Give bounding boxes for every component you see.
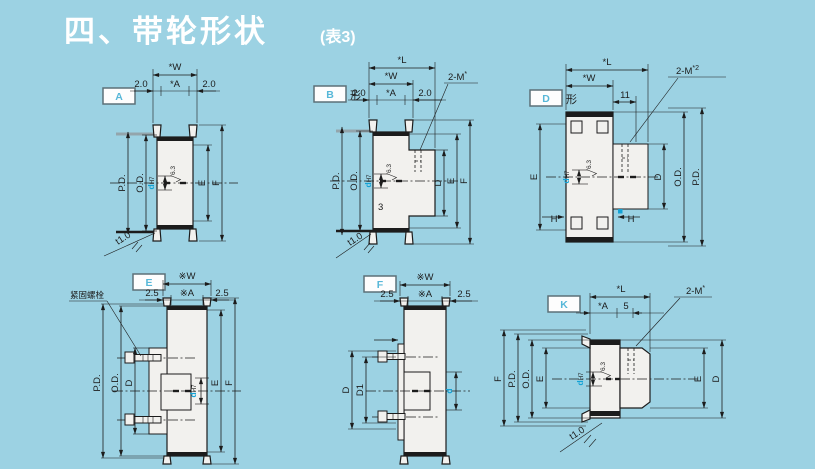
dim-e: E [210, 380, 221, 386]
dim-pad-right: 2.5 [457, 289, 470, 300]
dim-e-left: E [535, 376, 546, 382]
top-dimensions [130, 69, 220, 123]
dim-pad-left: 2.5 [145, 288, 158, 299]
dim-pd: P.D. [691, 168, 702, 185]
dim-e: E [529, 174, 540, 180]
dim-pd: P.D. [507, 370, 518, 387]
dim-pad-right: 2.5 [215, 288, 228, 299]
dim-h-left: H [551, 214, 558, 225]
dim-d: D [341, 386, 352, 393]
dim-a: ※A [418, 289, 433, 300]
type-a-label: A [103, 88, 135, 104]
svg-text:6.3: 6.3 [386, 164, 393, 173]
tap-callout [636, 297, 712, 346]
type-letter: K [560, 299, 568, 311]
dim-d1: D1 [355, 384, 366, 396]
dim-e-right: E [693, 376, 704, 382]
type-letter: A [115, 91, 123, 103]
tap-label: 2-M*2 [676, 65, 699, 77]
dim-w: ※W [179, 271, 196, 282]
svg-text:6.3: 6.3 [586, 160, 593, 169]
dim-od: O.D. [673, 167, 684, 187]
dim-od: O.D. [521, 369, 532, 389]
dim-od: O.D. [110, 373, 121, 393]
tap-label: 2-M* [686, 285, 705, 297]
dim-f: F [459, 178, 470, 184]
dim-a: *A [170, 79, 181, 90]
type-k-label: K [548, 296, 580, 312]
dim-f: F [211, 180, 222, 186]
dim-pad-left: 2.0 [134, 79, 147, 90]
dim-w: *W [169, 62, 182, 73]
dim-a: *A [386, 88, 397, 99]
dim-offset: 11 [620, 90, 630, 101]
dim-e: E [446, 178, 457, 184]
type-suffix: 形 [566, 93, 577, 106]
bore-label: dH7 [561, 170, 571, 184]
dim-pad-left: 2.5 [380, 289, 393, 300]
dim-w: *W [385, 71, 398, 82]
dim-l: *L [398, 55, 407, 66]
dim-f: F [224, 380, 235, 386]
dim-pad-left: 2.0 [352, 88, 365, 99]
diagram-type-e: E 紧固螺栓 [55, 268, 300, 468]
dim-pad-right: 2.0 [202, 79, 215, 90]
diagram-type-k: K *L *A 5 2-M* [490, 278, 755, 468]
dim-five: 5 [623, 301, 628, 312]
dim-d-hub: D [433, 179, 444, 186]
tap-callout [630, 77, 726, 142]
dim-w: *W [583, 73, 596, 84]
dim-pad-right: 2.0 [418, 88, 431, 99]
page-subtitle: (表3) [320, 23, 356, 47]
bore-label: d [444, 388, 454, 393]
type-d-label: D 形 [530, 90, 577, 106]
tap-label: 2-M* [448, 71, 467, 83]
diagram-type-a: A *W 2.0 *A 2.0 [58, 55, 290, 263]
dim-d-plate: D [124, 379, 135, 386]
svg-text:6.3: 6.3 [600, 362, 607, 371]
hub-mark: 3 [378, 202, 383, 213]
dim-pd: P.D. [92, 374, 103, 391]
dim-d-hub: D [653, 173, 664, 180]
page-title: 四、带轮形状 [64, 6, 268, 51]
pulley-body [149, 298, 211, 464]
dim-l: *L [617, 284, 626, 295]
pulley-body [398, 298, 450, 464]
diagram-type-f: F [316, 268, 516, 468]
dim-w: ※W [417, 272, 434, 283]
diagram-type-d: D 形 *L *W 11 [518, 54, 778, 261]
dim-t: t1.0 [346, 231, 365, 249]
diagram-type-b: B 形 *L *W [296, 52, 528, 266]
svg-text:6.3: 6.3 [170, 166, 177, 175]
dim-l: *L [603, 57, 612, 68]
type-letter: D [542, 93, 550, 105]
dim-t: t1.0 [568, 425, 587, 443]
bolt-callout-label: 紧固螺栓 [70, 290, 105, 300]
catalog-page: 四、带轮形状 (表3) A *W 2.0 [0, 0, 815, 469]
dim-h-right: H [628, 214, 635, 225]
dim-f: F [493, 376, 504, 382]
type-letter: B [326, 89, 334, 101]
dim-a: *A [598, 301, 609, 312]
dim-d-hub: D [711, 375, 722, 382]
dim-e: E [197, 180, 208, 186]
bolt-callout [69, 301, 141, 356]
dim-a: ※A [180, 288, 195, 299]
